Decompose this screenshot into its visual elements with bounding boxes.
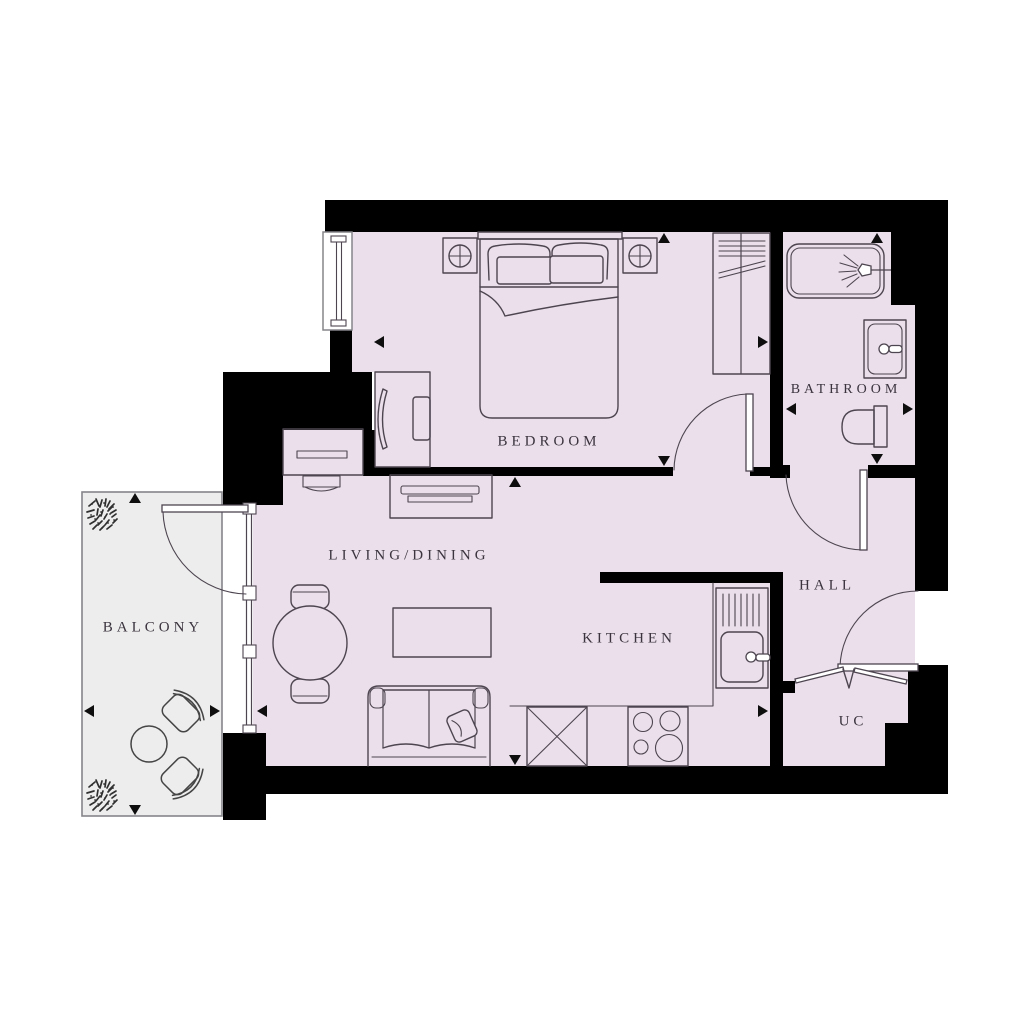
floorplan-page: BEDROOM BATHROOM LIVING/DINING KITCHEN H… — [0, 0, 1024, 1024]
balcony-area — [82, 492, 222, 816]
uc-label: UC — [839, 714, 868, 731]
round-dining-table-icon — [273, 606, 347, 680]
balcony-label: BALCONY — [103, 620, 204, 637]
bedroom-window-icon — [323, 232, 352, 330]
bedroom-door-gap — [673, 465, 750, 477]
living-dining-label: LIVING/DINING — [328, 548, 489, 565]
bedroom-label: BEDROOM — [497, 434, 600, 451]
bedroom-floor — [352, 232, 770, 372]
hall-label: HALL — [799, 578, 855, 595]
floorplan-drawing — [0, 0, 1024, 1024]
alcove-floor — [283, 429, 363, 476]
bathroom-label: BATHROOM — [791, 382, 902, 398]
balcony-deck — [82, 492, 222, 816]
bedroom-floor-lower — [375, 372, 770, 468]
bath-nook-floor — [783, 232, 891, 306]
kitchen-label: KITCHEN — [582, 631, 676, 648]
